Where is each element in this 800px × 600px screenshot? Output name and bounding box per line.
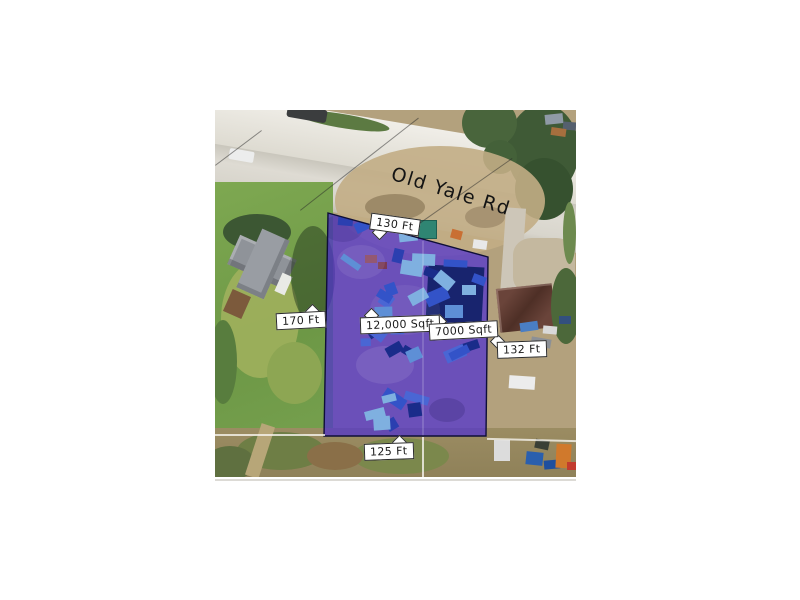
property-line [422,437,424,477]
parcel-vehicle-rect [444,259,468,267]
listing-image: Old Yale Rd 130 Ft 170 Ft 12,000 Sqft 70… [0,0,800,600]
dimension-label-bottom: 125 Ft [364,442,414,461]
parcel-vehicle-rect [462,285,476,295]
parcel-vehicle-rect [412,253,436,266]
property-line [215,434,325,436]
parcel-vehicle-rect [337,245,385,279]
parcel-vehicle-rect [429,398,465,422]
parcel-vehicle-rect [445,305,463,318]
area-label-secondary: 7000 Sqft [429,320,499,341]
parcel-vehicle-rect [360,338,370,346]
parcel-vehicle-rect [407,402,422,418]
dimension-label-left: 170 Ft [276,311,326,331]
photo-bottom-edge [215,479,576,481]
dimension-label-right: 132 Ft [497,340,547,359]
